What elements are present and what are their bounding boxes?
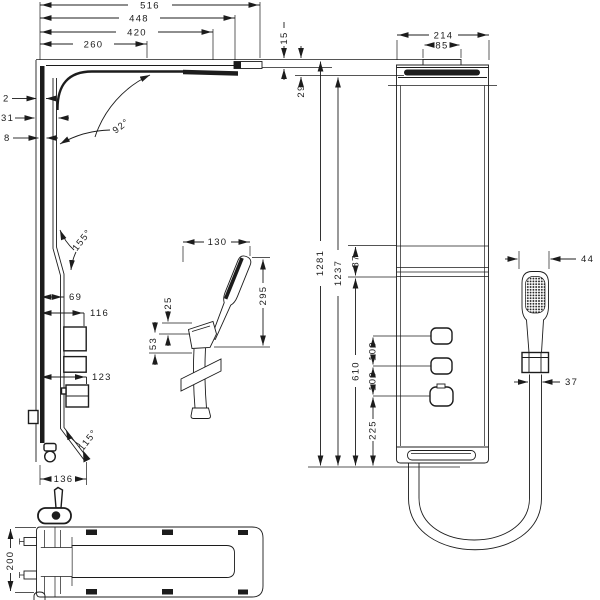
- button-leader-lines: [373, 336, 431, 396]
- dim-295: 295: [258, 286, 269, 306]
- shower-panel-dimension-drawing: 516 448 420 260 15 29 2 31 8 92°: [0, 0, 600, 600]
- dim-29: 29: [296, 84, 307, 97]
- dim-85: 85: [435, 41, 448, 52]
- dim-420: 420: [127, 28, 147, 39]
- bottom-center-cutout: [41, 548, 72, 577]
- angle-155: 155°: [70, 227, 94, 253]
- shelf-slot: [408, 451, 476, 461]
- hand-shower-holder: [189, 322, 217, 349]
- mount-clip: [238, 590, 248, 595]
- dim-448: 448: [129, 14, 149, 25]
- bottom-slot: [72, 546, 235, 578]
- diverter-lever-stick: [55, 488, 63, 509]
- wall-bracket-clip: [29, 411, 39, 424]
- dim-123: 123: [92, 372, 112, 383]
- dim-31: 31: [1, 113, 14, 124]
- side-view: [29, 60, 424, 463]
- bottom-view: 200: [5, 488, 263, 600]
- dim-100-upper: 100: [368, 341, 379, 361]
- thermostat-button: [430, 387, 453, 406]
- select-button-1: [431, 328, 452, 344]
- overhead-spray-plate: [183, 70, 238, 76]
- hose-break-mark: [181, 359, 221, 391]
- hand-shower-sprayface: [224, 257, 244, 299]
- bottom-foot: [44, 444, 56, 452]
- lever-pivot: [52, 511, 61, 520]
- hose-end-fitting: [191, 408, 211, 419]
- select-button-2: [431, 358, 452, 374]
- panel-back-profile: [40, 66, 45, 443]
- dim-1237: 1237: [333, 260, 344, 286]
- thermostat-tab: [62, 388, 67, 394]
- supply-connection-cold: [24, 571, 37, 579]
- arm-underside: [57, 72, 183, 111]
- dim-44: 44: [581, 254, 594, 265]
- side-view-dimensions: 516 448 420 260 15 29 2 31 8 92°: [1, 1, 307, 486]
- side-button-middle: [64, 357, 86, 373]
- angle-92: 92°: [111, 116, 132, 136]
- mount-clip: [162, 589, 173, 595]
- front-view: [308, 60, 549, 550]
- dim-37: 37: [565, 377, 578, 388]
- glass-joint-lines: [397, 246, 489, 277]
- arm-end-cap-dark: [234, 62, 241, 69]
- mount-clip: [162, 530, 173, 536]
- mount-clip: [86, 589, 97, 595]
- technical-drawing-page: 516 448 420 260 15 29 2 31 8 92°: [0, 0, 600, 600]
- dim-2: 2: [3, 94, 10, 105]
- hand-shower-holder-front: [522, 353, 549, 373]
- front-view-dimensions: 214 85 1281 1237 87 610 100 100 225: [315, 31, 594, 466]
- dim-130: 130: [208, 237, 228, 248]
- top-mount-block: [423, 60, 461, 66]
- dim-260: 260: [84, 40, 104, 51]
- dim-516: 516: [140, 1, 160, 12]
- dim-116: 116: [90, 308, 109, 319]
- dim-200: 200: [5, 551, 16, 571]
- dim-15: 15: [279, 31, 290, 44]
- dim-136: 136: [54, 474, 74, 485]
- side-button-upper: [64, 327, 86, 351]
- supply-connection-hot: [24, 538, 37, 546]
- dim-100-lower: 100: [368, 371, 379, 391]
- dim-610: 610: [351, 361, 362, 381]
- mount-clip: [238, 530, 248, 535]
- dim-53: 53: [148, 337, 159, 350]
- hose-outlet-tab: [34, 592, 45, 600]
- dim-8: 8: [4, 133, 11, 144]
- overhead-shower-strip: [404, 70, 480, 76]
- hand-shower-detail: 130 295 25 53: [148, 237, 270, 419]
- dim-225: 225: [368, 420, 379, 440]
- angle-115: 115°: [77, 427, 101, 453]
- dim-25: 25: [163, 296, 174, 309]
- mount-clip: [86, 530, 97, 536]
- bottom-foot-knob: [45, 451, 56, 462]
- hand-shower-sprayface-front: [526, 277, 546, 314]
- dim-87: 87: [351, 254, 362, 267]
- thermostat-button-tab: [437, 384, 445, 388]
- dim-1281: 1281: [315, 250, 326, 276]
- dim-69: 69: [69, 292, 82, 303]
